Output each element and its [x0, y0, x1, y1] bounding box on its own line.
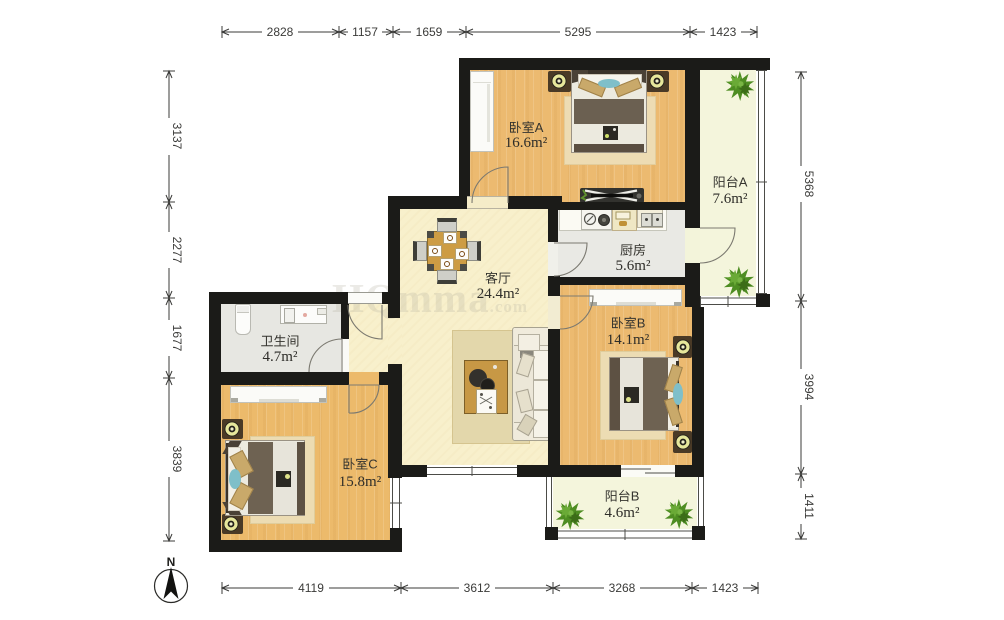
svg-text:1677: 1677 — [170, 325, 184, 352]
svg-text:B: B — [631, 489, 640, 504]
svg-text:5368: 5368 — [802, 171, 816, 198]
svg-text:C: C — [368, 457, 377, 472]
svg-text:A: A — [535, 120, 544, 135]
svg-text:1659: 1659 — [416, 25, 443, 39]
svg-text:3137: 3137 — [170, 123, 184, 150]
svg-text:3994: 3994 — [802, 374, 816, 401]
svg-text:4119: 4119 — [298, 581, 324, 595]
svg-text:1157: 1157 — [352, 25, 378, 39]
svg-text:2277: 2277 — [170, 237, 184, 264]
svg-text:1423: 1423 — [710, 25, 737, 39]
svg-text:3839: 3839 — [170, 446, 184, 473]
svg-text:3612: 3612 — [464, 581, 491, 595]
svg-text:5295: 5295 — [565, 25, 592, 39]
svg-text:B: B — [637, 316, 646, 331]
svg-text:N: N — [167, 555, 176, 569]
svg-text:1423: 1423 — [712, 581, 739, 595]
svg-text:A: A — [739, 175, 748, 190]
svg-text:3268: 3268 — [609, 581, 636, 595]
svg-text:2828: 2828 — [267, 25, 294, 39]
svg-text:1411: 1411 — [802, 493, 816, 519]
